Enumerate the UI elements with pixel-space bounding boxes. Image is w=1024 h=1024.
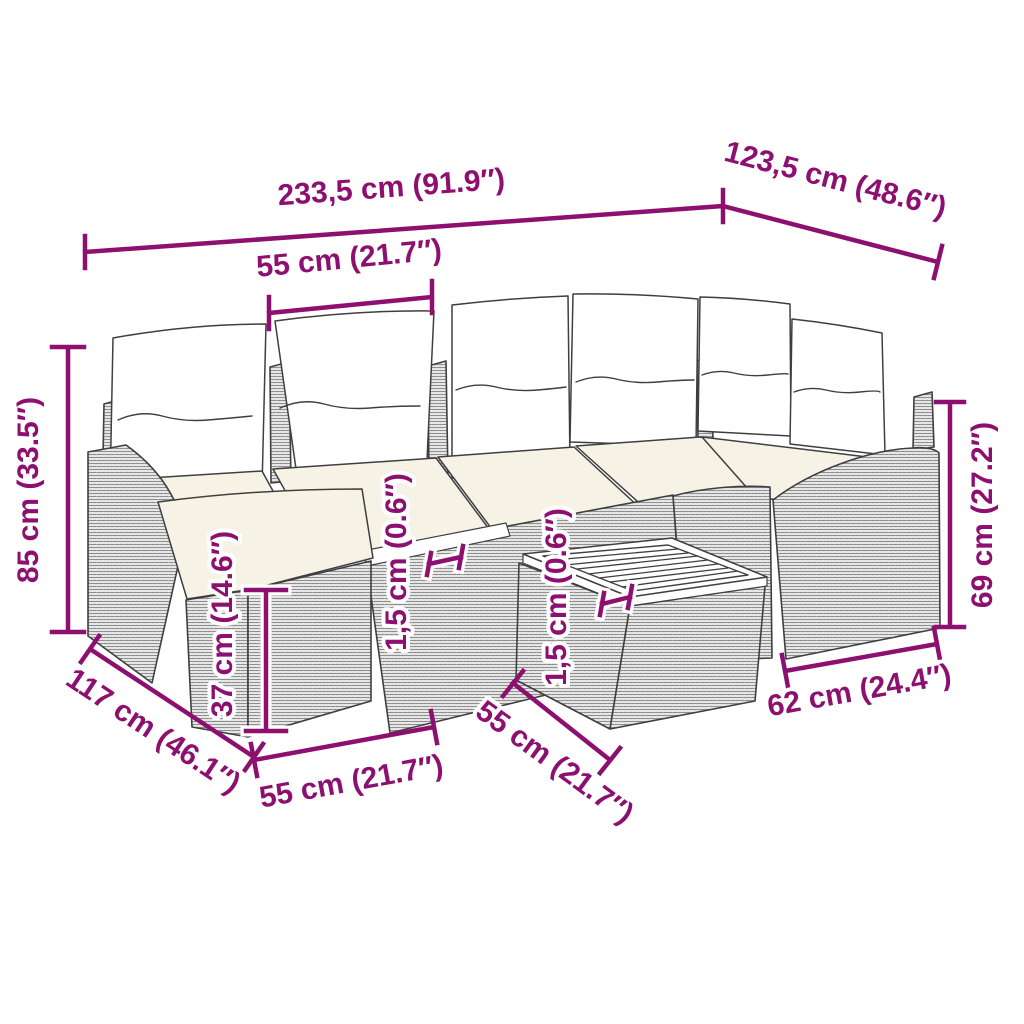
dim-corner-depth-line — [723, 206, 942, 278]
dim-corner-depth: 123,5 cm (48.6″) — [721, 135, 950, 278]
diagram-canvas: 233,5 cm (91.9″) 123,5 cm (48.6″) 55 cm … — [0, 0, 1024, 1024]
dim-overall-width-label: 233,5 cm (91.9″) — [276, 163, 506, 213]
back-pillow-2 — [275, 311, 434, 483]
dim-seat-height-label: 37 cm (14.6″) — [206, 531, 239, 717]
dim-total-height-label: 85 cm (33.5″) — [12, 397, 45, 583]
dim-corner-depth-label: 123,5 cm (48.6″) — [721, 135, 950, 224]
dim-total-height: 85 cm (33.5″) — [12, 347, 84, 632]
dim-arm-height-label: 69 cm (27.2″) — [966, 422, 999, 608]
back-pillow-5 — [698, 297, 791, 436]
back-pillow-4 — [570, 294, 698, 446]
back-post-right — [913, 392, 934, 450]
product-dimension-diagram: 233,5 cm (91.9″) 123,5 cm (48.6″) 55 cm … — [0, 0, 1024, 1024]
dim-frame-thickness-label: 1,5 cm (0.6″) — [380, 473, 413, 651]
dim-arm-height: 69 cm (27.2″) — [936, 402, 999, 627]
dim-tabletop-thickness-label: 1,5 cm (0.6″) — [540, 508, 573, 686]
dim-footstool-width-label: 55 cm (21.7″) — [257, 749, 446, 815]
back-pillow-6 — [790, 319, 885, 455]
dim-total-height-line — [52, 347, 84, 632]
dim-seat-width-label: 55 cm (21.7″) — [255, 233, 443, 284]
